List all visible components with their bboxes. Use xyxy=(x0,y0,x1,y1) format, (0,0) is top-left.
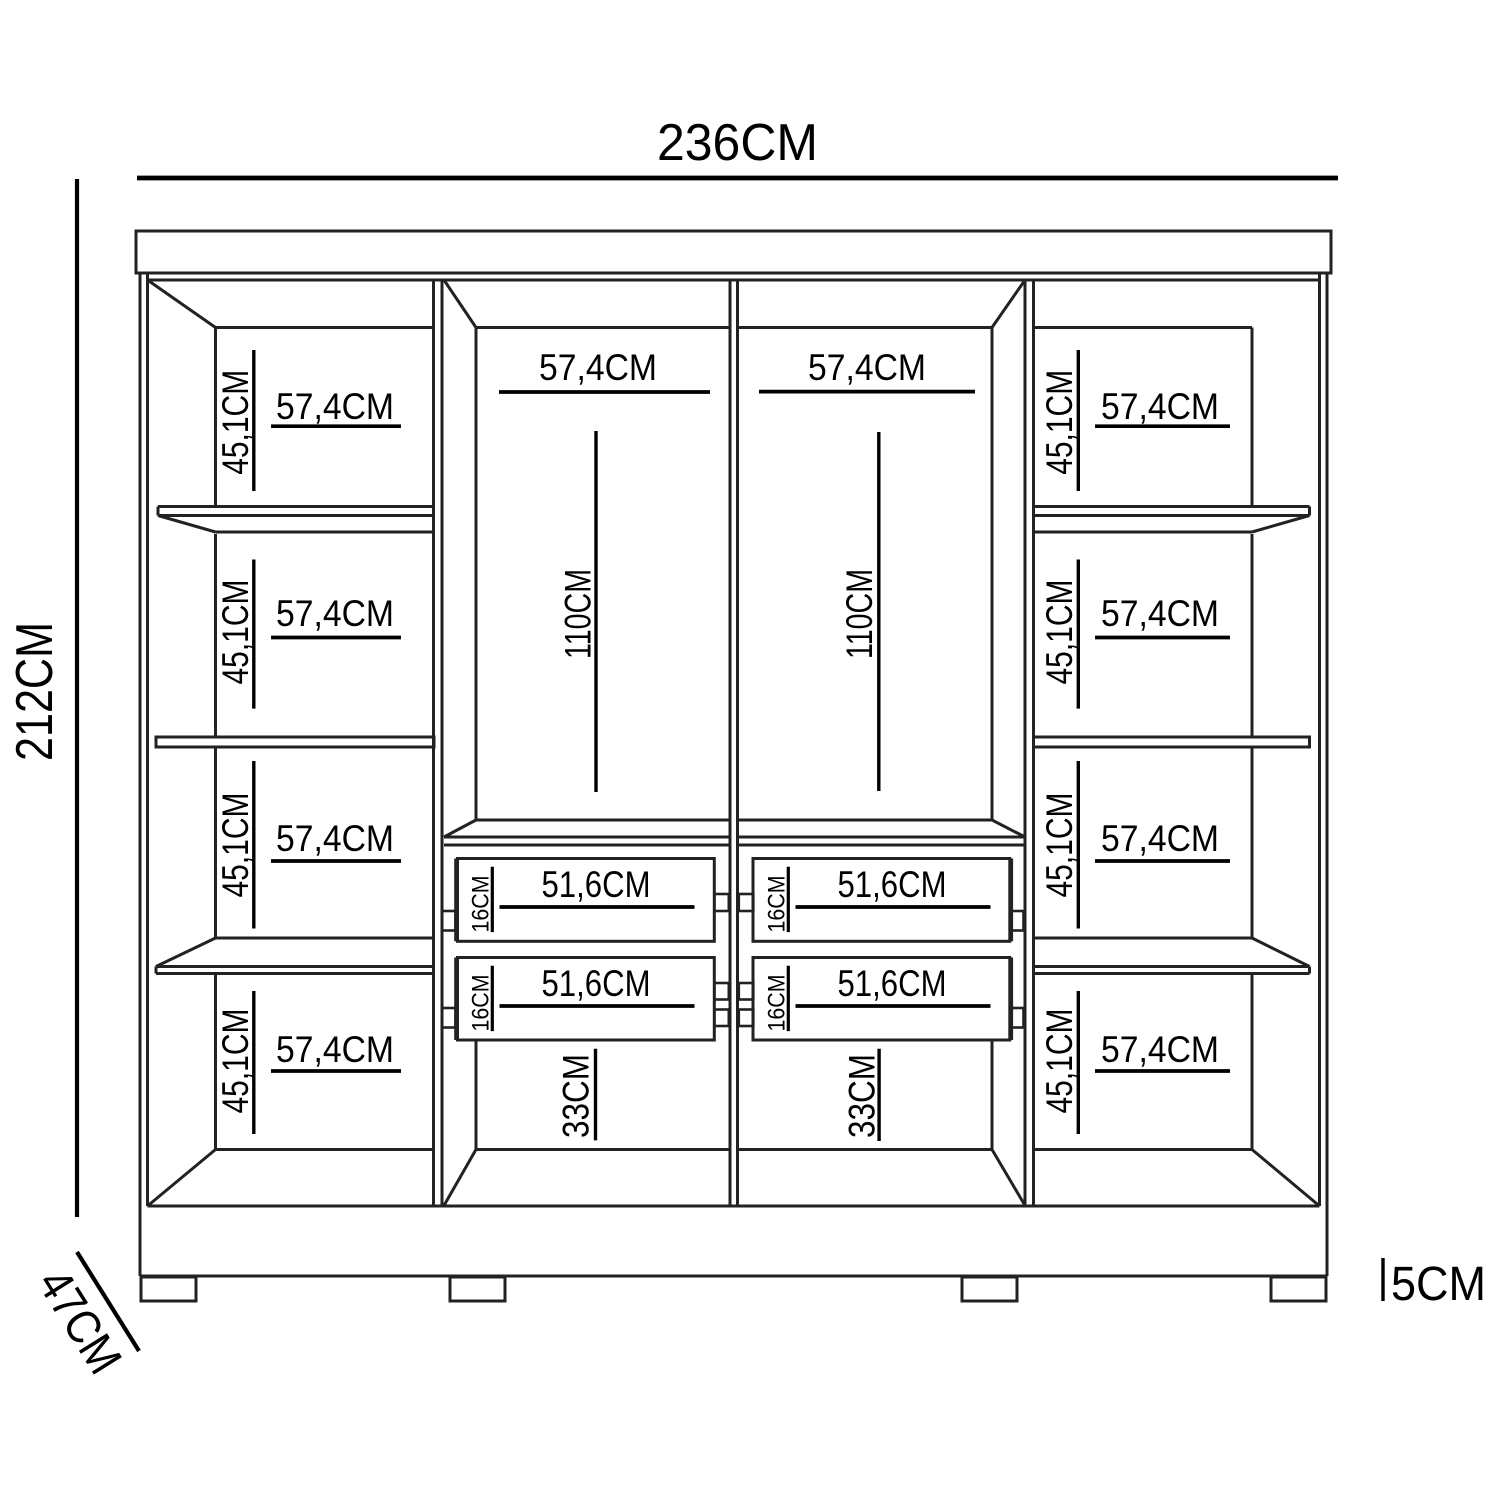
svg-text:16CM: 16CM xyxy=(468,876,495,933)
svg-text:51,6CM: 51,6CM xyxy=(542,963,651,1004)
svg-text:45,1CM: 45,1CM xyxy=(1039,370,1080,475)
svg-text:16CM: 16CM xyxy=(468,975,495,1032)
svg-text:45,1CM: 45,1CM xyxy=(215,580,256,685)
svg-text:45,1CM: 45,1CM xyxy=(1039,1009,1080,1114)
svg-text:5CM: 5CM xyxy=(1391,1258,1486,1311)
svg-text:33CM: 33CM xyxy=(842,1054,883,1138)
svg-text:110CM: 110CM xyxy=(558,569,599,659)
svg-text:51,6CM: 51,6CM xyxy=(838,864,947,905)
svg-text:57,4CM: 57,4CM xyxy=(539,347,657,388)
svg-text:212CM: 212CM xyxy=(6,622,64,761)
svg-text:57,4CM: 57,4CM xyxy=(276,1029,394,1070)
svg-text:45,1CM: 45,1CM xyxy=(215,1009,256,1114)
svg-text:57,4CM: 57,4CM xyxy=(808,347,926,388)
svg-text:45,1CM: 45,1CM xyxy=(215,793,256,898)
svg-text:57,4CM: 57,4CM xyxy=(276,386,394,427)
svg-text:51,6CM: 51,6CM xyxy=(542,864,651,905)
svg-text:16CM: 16CM xyxy=(764,975,791,1032)
svg-text:16CM: 16CM xyxy=(764,876,791,933)
svg-text:51,6CM: 51,6CM xyxy=(838,963,947,1004)
svg-text:57,4CM: 57,4CM xyxy=(276,818,394,859)
svg-text:236CM: 236CM xyxy=(657,114,818,172)
svg-text:45,1CM: 45,1CM xyxy=(215,370,256,475)
svg-text:45,1CM: 45,1CM xyxy=(1039,580,1080,685)
svg-text:33CM: 33CM xyxy=(556,1054,597,1138)
svg-text:57,4CM: 57,4CM xyxy=(1101,386,1219,427)
svg-text:110CM: 110CM xyxy=(839,569,880,659)
svg-text:57,4CM: 57,4CM xyxy=(276,593,394,634)
svg-text:57,4CM: 57,4CM xyxy=(1101,818,1219,859)
svg-text:57,4CM: 57,4CM xyxy=(1101,593,1219,634)
svg-text:57,4CM: 57,4CM xyxy=(1101,1029,1219,1070)
svg-text:45,1CM: 45,1CM xyxy=(1039,793,1080,898)
